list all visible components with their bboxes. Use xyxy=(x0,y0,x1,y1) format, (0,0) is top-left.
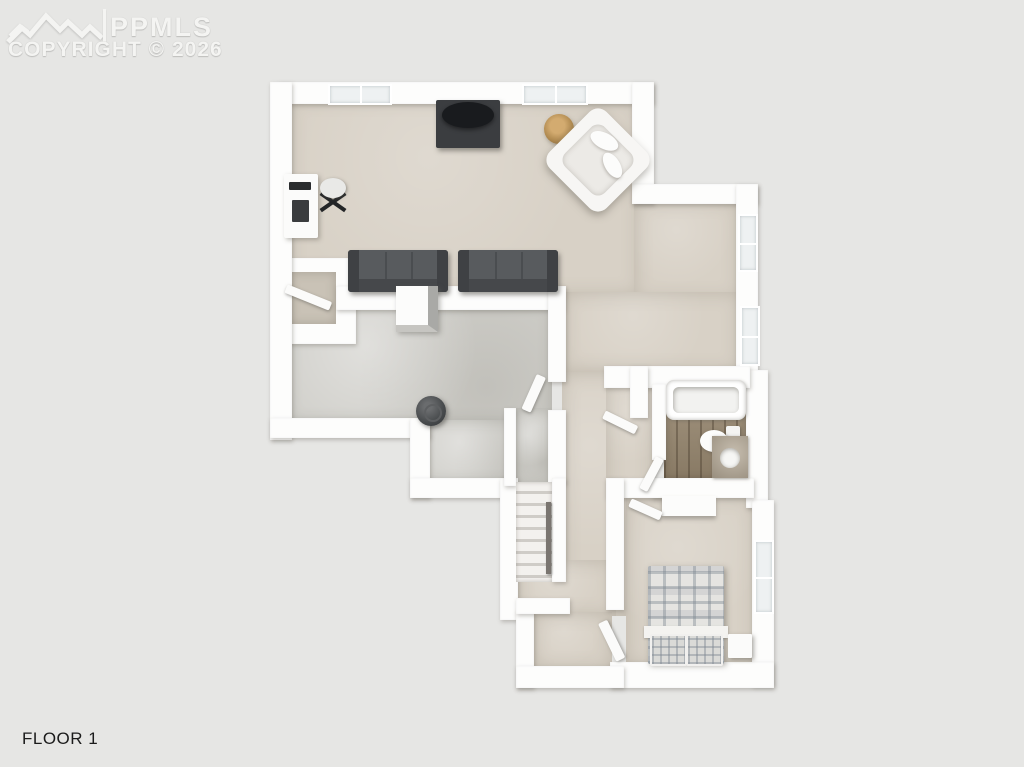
nightstand xyxy=(728,634,752,658)
wall-stairwell-left xyxy=(504,408,516,486)
office-chair xyxy=(312,178,352,226)
keyboard xyxy=(292,200,309,222)
wall-bath-left xyxy=(652,384,666,460)
window-right-upper xyxy=(738,214,758,272)
floor-plan xyxy=(0,0,1024,767)
water-heater xyxy=(416,396,446,426)
wall-left xyxy=(270,82,292,440)
wall-bedroom-top xyxy=(606,478,754,498)
stairwell-floor xyxy=(516,408,552,486)
bed xyxy=(648,566,724,664)
living-room-floor-arm xyxy=(562,292,740,372)
wall-mid-upper xyxy=(548,286,566,382)
wall-vestibule-top xyxy=(516,598,570,614)
floor-plan-image: PPMLS COPYRIGHT © 2026 FLOOR 1 xyxy=(0,0,1024,767)
bed-pillow xyxy=(686,634,723,666)
wall-mid-lower xyxy=(548,410,566,484)
television xyxy=(442,102,494,128)
bedroom-closet-shelf xyxy=(662,496,716,516)
sink xyxy=(720,448,740,468)
wall-unfinished-bottom xyxy=(410,478,510,498)
wall-bedroom-left xyxy=(606,478,624,610)
bathtub xyxy=(666,380,746,420)
living-room-floor-right xyxy=(634,200,740,300)
tv-console xyxy=(436,100,500,148)
cabinet xyxy=(396,286,438,332)
vanity xyxy=(712,436,748,478)
window-bedroom xyxy=(754,540,774,614)
wall-notch-bottom xyxy=(270,418,430,438)
window-top-left xyxy=(328,84,392,105)
wall-vestibule-bottom xyxy=(516,666,624,688)
floor-label: FLOOR 1 xyxy=(22,729,98,749)
watermark-copyright: COPYRIGHT © 2026 xyxy=(8,38,223,62)
stair-handrail xyxy=(546,502,551,574)
bed-pillow xyxy=(650,634,687,666)
vestibule-floor xyxy=(532,612,612,670)
wall-bathhall xyxy=(630,366,648,418)
window-top-center xyxy=(522,84,588,105)
chair-seat xyxy=(320,178,346,198)
window-right-lower xyxy=(740,306,760,366)
sofa-right xyxy=(458,250,558,292)
wall-stair-right xyxy=(552,478,566,582)
monitor xyxy=(289,182,311,190)
watermark: PPMLS COPYRIGHT © 2026 xyxy=(6,4,236,64)
